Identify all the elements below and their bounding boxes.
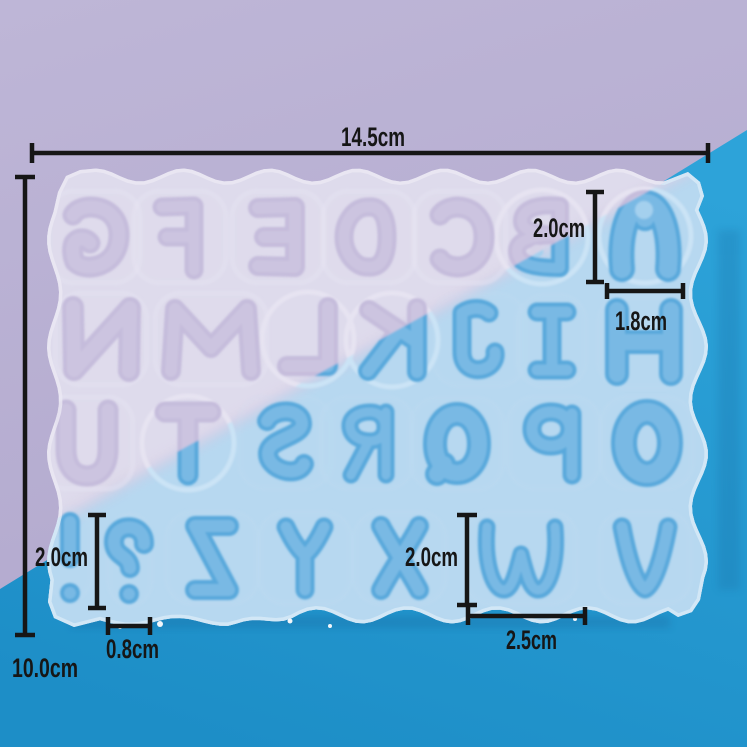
svg-text:0.8cm: 0.8cm (106, 634, 159, 664)
svg-text:2.0cm: 2.0cm (35, 542, 88, 572)
svg-text:2.0cm: 2.0cm (533, 213, 585, 243)
svg-text:1.8cm: 1.8cm (615, 306, 667, 336)
svg-text:2.0cm: 2.0cm (405, 542, 458, 572)
svg-text:10.0cm: 10.0cm (12, 653, 78, 683)
svg-text:2.5cm: 2.5cm (506, 625, 557, 655)
svg-text:14.5cm: 14.5cm (341, 122, 405, 152)
